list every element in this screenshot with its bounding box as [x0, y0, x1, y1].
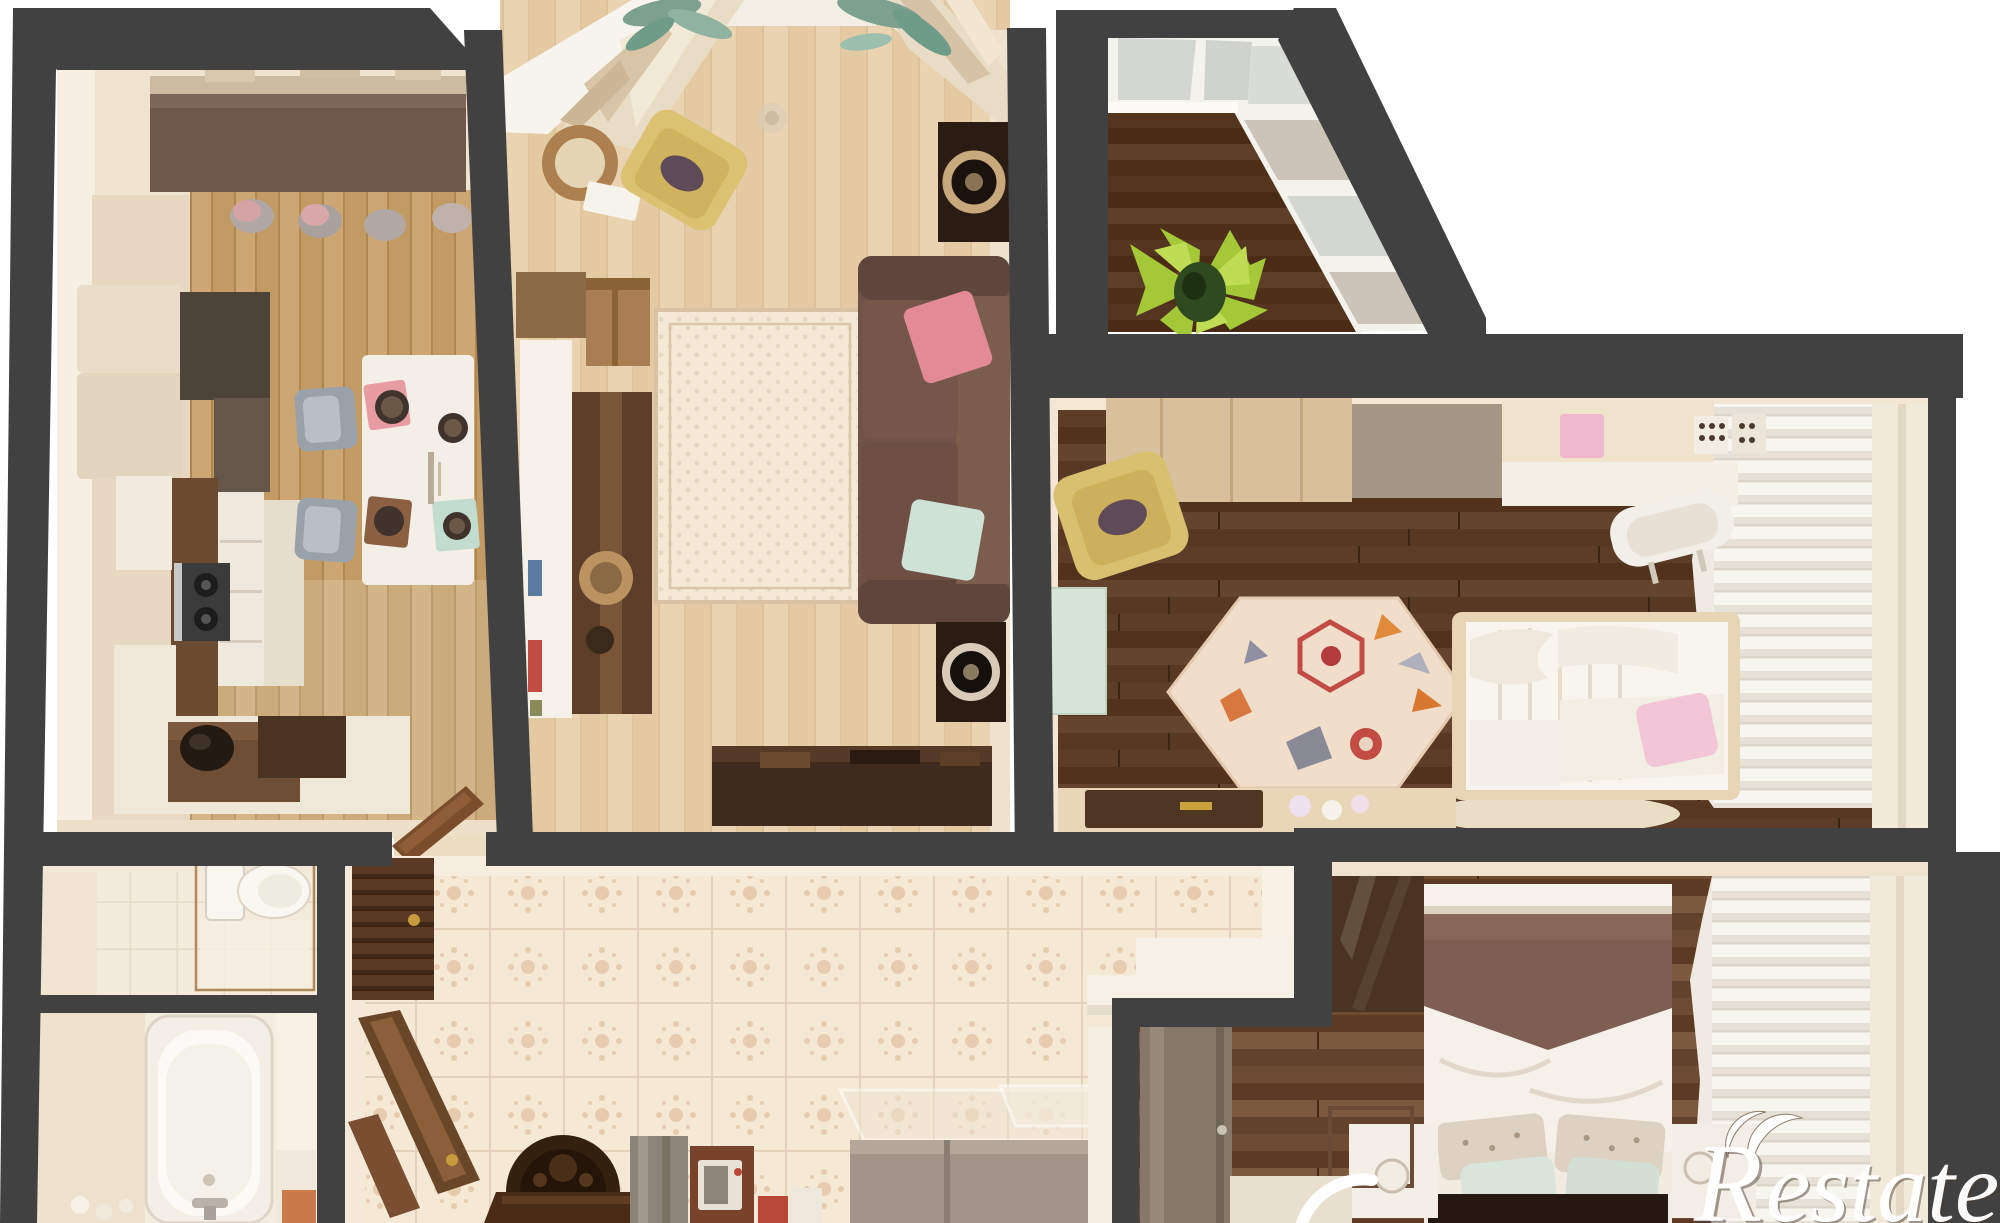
svg-text:estate: estate	[1766, 1132, 1999, 1223]
svg-text:R: R	[1693, 1122, 1762, 1223]
